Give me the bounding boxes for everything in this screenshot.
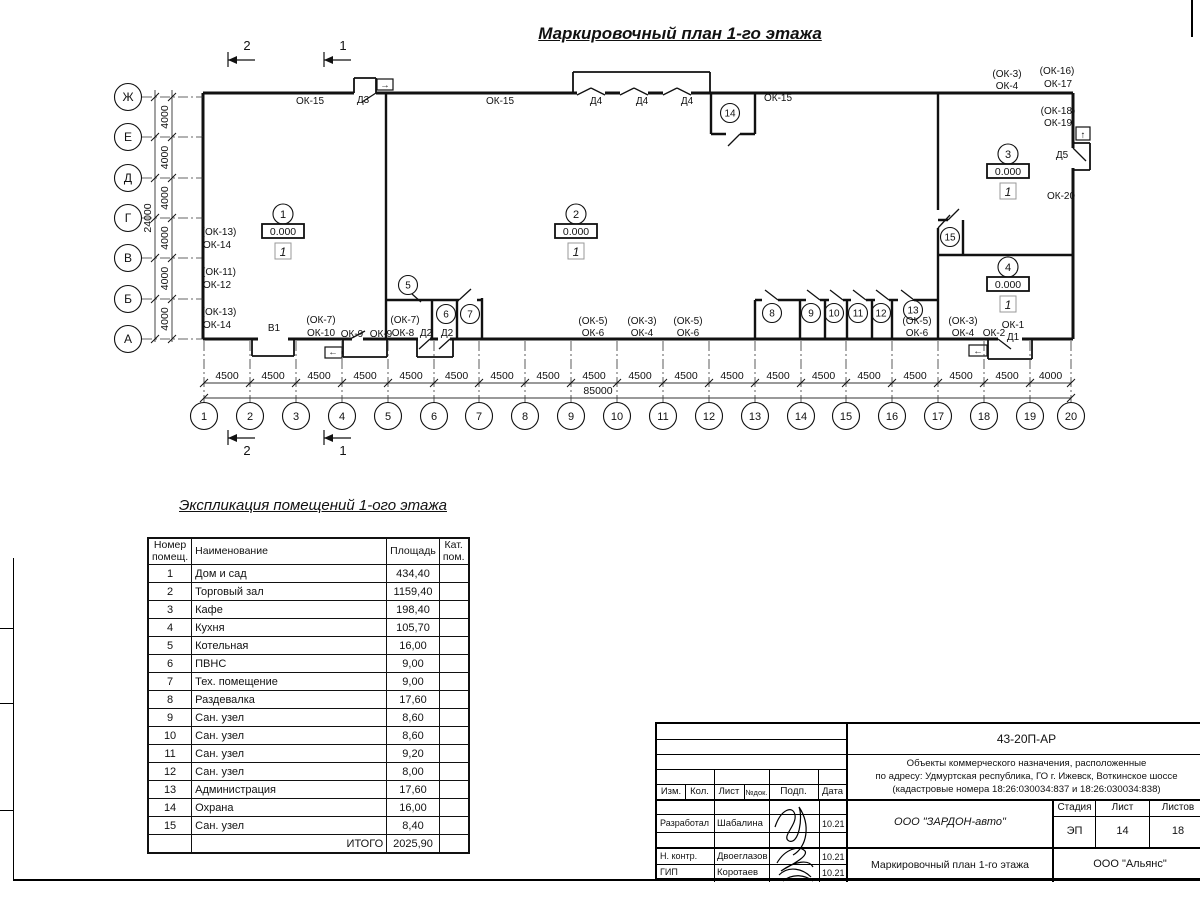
window-tick xyxy=(202,227,205,233)
plan-label: (ОК-5) xyxy=(578,316,607,327)
room-area-cell: 1159,40 xyxy=(387,583,440,601)
plan-label: ОК-14 xyxy=(203,240,231,251)
window-tick xyxy=(719,92,725,95)
window-tick xyxy=(1072,327,1075,333)
dim-value: 4500 xyxy=(215,370,239,382)
room-area-cell: 434,40 xyxy=(387,565,440,583)
col-podp: Подп. xyxy=(769,786,818,799)
entry-arrow-icon: → xyxy=(380,80,390,91)
section-arrow xyxy=(324,56,333,64)
axis-number: 20 xyxy=(1065,411,1077,423)
axis-number: 15 xyxy=(840,411,852,423)
plan-label: ОК-8 xyxy=(392,328,415,339)
plan-label: ОК-15 xyxy=(764,93,792,104)
drawing-sheet: { "title": "Маркировочный план 1-го этаж… xyxy=(0,0,1200,900)
floor-plan-svg: ЖЕДГВБА400040004000400040004000240001234… xyxy=(0,0,1200,480)
window-tick xyxy=(902,338,908,341)
plan-label: Д1 xyxy=(1007,332,1020,343)
dim-value: 4500 xyxy=(995,370,1019,382)
window-tick xyxy=(872,338,878,341)
dim-value: 4500 xyxy=(812,370,836,382)
dim-value: 4000 xyxy=(159,146,171,170)
window-tick xyxy=(202,197,205,203)
room-number: 5 xyxy=(405,281,411,292)
name-developer: Шабалина xyxy=(717,818,769,830)
axis-number: 11 xyxy=(657,411,668,423)
window-tick xyxy=(239,92,245,95)
plan-label: Д4 xyxy=(681,96,694,107)
room-number: 1 xyxy=(280,209,286,221)
schedule-row: 2Торговый зал1159,40 xyxy=(148,583,469,601)
section-arrow xyxy=(228,56,237,64)
window-tick xyxy=(209,92,215,95)
room-number-cell: 1 xyxy=(148,565,192,583)
sheets-label: Листов xyxy=(1150,802,1200,815)
sheet-label: Лист xyxy=(1096,802,1149,815)
dim-value: 4500 xyxy=(399,370,423,382)
plan-label: ОК-17 xyxy=(1044,79,1072,90)
type-mark: 1 xyxy=(1005,298,1012,312)
dim-value: 4500 xyxy=(582,370,606,382)
signature-developer xyxy=(775,807,806,855)
room-schedule-title: Экспликация помещений 1-ого этажа xyxy=(168,497,458,514)
date-ncontrol: 10.21 xyxy=(822,852,848,863)
window-tick xyxy=(752,338,758,341)
elevation-value: 0.000 xyxy=(270,226,296,238)
room-name-cell: Кухня xyxy=(192,619,387,637)
window-tick xyxy=(782,338,788,341)
dim-value: 4000 xyxy=(159,307,171,331)
entry-arrow-icon: ← xyxy=(973,346,983,357)
type-mark: 1 xyxy=(573,245,580,259)
schedule-row: 3Кафе198,40 xyxy=(148,601,469,619)
schedule-row: 10Сан. узел8,60 xyxy=(148,727,469,745)
room-number-cell: 8 xyxy=(148,691,192,709)
room-number: 3 xyxy=(1005,149,1011,161)
room-category-cell xyxy=(439,673,468,691)
axis-number: 12 xyxy=(703,411,715,423)
plan-label: ОК-14 xyxy=(203,320,231,331)
window-tick xyxy=(779,92,785,95)
axis-number: 18 xyxy=(978,411,990,423)
doc-number: 43-20П-АР xyxy=(847,732,1200,747)
room-category-cell xyxy=(439,817,468,835)
role-ncontrol: Н. контр. xyxy=(660,851,714,862)
window-tick xyxy=(1072,182,1075,188)
room-number-cell: 2 xyxy=(148,583,192,601)
plan-label: Д2 xyxy=(441,328,454,339)
frame-bottom-border xyxy=(13,879,1200,881)
room-number: 9 xyxy=(808,309,814,320)
room-name-cell: Котельная xyxy=(192,637,387,655)
room-area-cell: 16,00 xyxy=(387,799,440,817)
window-tick xyxy=(572,338,578,341)
axis-number: 17 xyxy=(932,411,944,423)
room-number-cell: 4 xyxy=(148,619,192,637)
axis-number: 2 xyxy=(247,411,253,423)
sheet-value: 14 xyxy=(1096,825,1149,839)
room-name-cell: Дом и сад xyxy=(192,565,387,583)
axis-number: 9 xyxy=(568,411,574,423)
window-tick xyxy=(899,92,905,95)
plan-label: (ОК-13) xyxy=(202,227,237,238)
plan-label: (ОК-18) xyxy=(1041,106,1076,117)
axis-number: 14 xyxy=(795,411,807,423)
window-tick xyxy=(299,92,305,95)
room-schedule-table: Номер помещ. Наименование Площадь Кат. п… xyxy=(147,537,470,854)
axis-number: 6 xyxy=(431,411,437,423)
window-tick xyxy=(1072,107,1075,113)
col-area: Площадь xyxy=(387,538,440,565)
plan-label: Д3 xyxy=(357,95,370,106)
signatures xyxy=(769,799,819,882)
plan-label: ОК-9 xyxy=(370,329,393,340)
window-tick xyxy=(539,92,545,95)
window-tick xyxy=(202,317,205,323)
room-name-cell: ПВНС xyxy=(192,655,387,673)
room-number: 15 xyxy=(944,233,956,244)
plan-label: ОК-6 xyxy=(906,328,929,339)
object-line-2: по адресу: Удмуртская республика, ГО г. … xyxy=(849,771,1200,783)
room-category-cell xyxy=(439,637,468,655)
room-area-cell: 8,60 xyxy=(387,727,440,745)
schedule-row: 7Тех. помещение9,00 xyxy=(148,673,469,691)
window-tick xyxy=(1072,272,1075,278)
name-ncontrol: Двоеглазов xyxy=(717,851,769,863)
type-mark: 1 xyxy=(1005,185,1012,199)
schedule-row: 12Сан. узел8,00 xyxy=(148,763,469,781)
room-number: 10 xyxy=(828,309,840,320)
plan-label: Д5 xyxy=(1056,150,1069,161)
plan-label: ОК-4 xyxy=(631,328,654,339)
date-gip: 10.21 xyxy=(822,868,848,879)
room-number: 2 xyxy=(573,209,579,221)
plan-label: ОК-10 xyxy=(307,328,335,339)
plan-label: (ОК-3) xyxy=(948,316,977,327)
window-tick xyxy=(1072,242,1075,248)
room-number-cell: 12 xyxy=(148,763,192,781)
dim-value: 4000 xyxy=(159,267,171,291)
window-tick xyxy=(932,338,938,341)
plan-label: Д2 xyxy=(420,328,433,339)
schedule-row: 13Администрация17,60 xyxy=(148,781,469,799)
plan-label: ОК-9 xyxy=(341,329,364,340)
dim-total: 85000 xyxy=(583,385,612,397)
window-tick xyxy=(959,92,965,95)
elevation-value: 0.000 xyxy=(995,279,1021,291)
room-category-cell xyxy=(439,763,468,781)
axis-number: 7 xyxy=(476,411,482,423)
role-developer: Разработал xyxy=(660,818,714,829)
room-area-cell: 105,70 xyxy=(387,619,440,637)
section-arrow xyxy=(324,434,333,442)
window-tick xyxy=(632,338,638,341)
plan-label: В1 xyxy=(268,323,281,334)
room-name-cell: Торговый зал xyxy=(192,583,387,601)
sheets-value: 18 xyxy=(1150,825,1200,839)
plan-label: ОК-6 xyxy=(582,328,605,339)
window-tick xyxy=(419,92,425,95)
window-tick xyxy=(202,107,205,113)
room-number-cell: 13 xyxy=(148,781,192,799)
window-tick xyxy=(662,338,668,341)
room-number: 6 xyxy=(443,310,449,321)
room-name-cell: Сан. узел xyxy=(192,709,387,727)
dim-value: 4500 xyxy=(307,370,331,382)
schedule-row: 4Кухня105,70 xyxy=(148,619,469,637)
schedule-total-row: ИТОГО2025,90 xyxy=(148,835,469,854)
plan-label: ОК-6 xyxy=(677,328,700,339)
empty-cell xyxy=(439,835,468,854)
axis-number: 19 xyxy=(1024,411,1036,423)
col-kol: Кол. xyxy=(685,786,714,798)
window-tick xyxy=(722,338,728,341)
col-ndok: №док. xyxy=(744,788,769,797)
window-tick xyxy=(1019,92,1025,95)
axis-number: 3 xyxy=(293,411,299,423)
room-name-cell: Охрана xyxy=(192,799,387,817)
window-tick xyxy=(1052,338,1058,341)
window-tick xyxy=(602,338,608,341)
room-name-cell: Сан. узел xyxy=(192,727,387,745)
window-tick xyxy=(1072,212,1075,218)
window-tick xyxy=(329,92,335,95)
window-tick xyxy=(242,338,248,341)
dim-value: 4500 xyxy=(536,370,560,382)
outer-walls xyxy=(203,93,1073,339)
window-tick xyxy=(202,257,205,263)
total-value-cell: 2025,90 xyxy=(387,835,440,854)
dim-total: 24000 xyxy=(142,203,154,232)
axis-letter: Д xyxy=(124,171,132,185)
room-number: 12 xyxy=(875,309,887,320)
frame-left-tick-2 xyxy=(0,703,13,704)
plan-label: (ОК-11) xyxy=(202,267,236,278)
room-category-cell xyxy=(439,781,468,799)
dim-value: 4500 xyxy=(857,370,881,382)
plan-label: ОК-15 xyxy=(486,96,514,107)
room-number-cell: 10 xyxy=(148,727,192,745)
section-number: 1 xyxy=(339,443,346,458)
col-data: Дата xyxy=(818,786,847,798)
window-tick xyxy=(509,92,515,95)
dim-value: 4500 xyxy=(353,370,377,382)
axis-letter: В xyxy=(124,251,132,265)
schedule-row: 6ПВНС9,00 xyxy=(148,655,469,673)
window-tick xyxy=(809,92,815,95)
axis-number: 4 xyxy=(339,411,345,423)
room-area-cell: 17,60 xyxy=(387,781,440,799)
door-leaves xyxy=(352,88,1086,349)
dim-value: 4500 xyxy=(720,370,744,382)
axis-letter: Е xyxy=(124,130,132,144)
plan-label: (ОК-7) xyxy=(390,315,419,326)
col-name: Наименование xyxy=(192,538,387,565)
dim-value: 4000 xyxy=(1039,370,1063,382)
room-name-cell: Администрация xyxy=(192,781,387,799)
total-label-cell: ИТОГО xyxy=(192,835,387,854)
org-designer: ООО "ЗАРДОН-авто" xyxy=(847,816,1053,830)
room-number-cell: 7 xyxy=(148,673,192,691)
col-izm: Изм. xyxy=(657,786,685,798)
room-area-cell: 9,00 xyxy=(387,655,440,673)
frame-left-tick-1 xyxy=(0,628,13,629)
room-number: 7 xyxy=(467,310,473,321)
room-category-cell xyxy=(439,745,468,763)
room-number: 8 xyxy=(769,309,775,320)
plan-label: ОК-19 xyxy=(1044,118,1072,129)
room-category-cell xyxy=(439,583,468,601)
room-category-cell xyxy=(439,565,468,583)
window-tick xyxy=(212,338,218,341)
axis-letter: Б xyxy=(124,292,132,306)
plan-label: ОК-4 xyxy=(952,328,975,339)
window-tick xyxy=(479,92,485,95)
name-gip: Коротаев xyxy=(717,867,769,879)
dim-value: 4500 xyxy=(628,370,652,382)
plan-label: (ОК-13) xyxy=(202,307,237,318)
window-tick xyxy=(202,137,205,143)
stage-value: ЭП xyxy=(1054,825,1095,839)
window-tick xyxy=(812,338,818,341)
title-block: Изм. Кол. Лист №док. Подп. Дата Разработ… xyxy=(655,722,1200,880)
window-tick xyxy=(269,92,275,95)
axis-number: 10 xyxy=(611,411,623,423)
room-category-cell xyxy=(439,727,468,745)
stage-label: Стадия xyxy=(1054,802,1095,815)
dim-value: 4500 xyxy=(490,370,514,382)
empty-cell xyxy=(148,835,192,854)
room-name-cell: Сан. узел xyxy=(192,817,387,835)
interior-walls xyxy=(386,93,1073,339)
room-area-cell: 8,40 xyxy=(387,817,440,835)
object-line-3: (кадастровые номера 18:26:030034:837 и 1… xyxy=(849,784,1200,796)
window-tick xyxy=(302,338,308,341)
section-number: 1 xyxy=(339,38,346,53)
drawing-name: Маркировочный план 1-го этажа xyxy=(847,859,1053,872)
window-tick xyxy=(929,92,935,95)
axis-letter: А xyxy=(124,332,132,346)
dim-value: 4500 xyxy=(903,370,927,382)
dim-value: 4000 xyxy=(159,186,171,210)
room-area-cell: 17,60 xyxy=(387,691,440,709)
schedule-row: 1Дом и сад434,40 xyxy=(148,565,469,583)
dimension-lines xyxy=(155,90,1071,398)
room-number-cell: 6 xyxy=(148,655,192,673)
plan-label: (ОК-7) xyxy=(306,315,335,326)
axis-number: 1 xyxy=(201,411,207,423)
plan-label: (ОК-16) xyxy=(1040,66,1075,77)
window-tick xyxy=(392,338,398,341)
room-category-cell xyxy=(439,691,468,709)
window-tick xyxy=(839,92,845,95)
axis-number: 16 xyxy=(886,411,898,423)
room-schedule: Номер помещ. Наименование Площадь Кат. п… xyxy=(147,537,470,854)
plan-label: ОК-4 xyxy=(996,81,1019,92)
axis-number: 8 xyxy=(522,411,528,423)
window-tick xyxy=(449,92,455,95)
section-arrow xyxy=(228,434,237,442)
dim-value: 4000 xyxy=(159,226,171,250)
axis-number: 5 xyxy=(385,411,391,423)
window-tick xyxy=(869,92,875,95)
plan-label: (ОК-5) xyxy=(673,316,702,327)
room-area-cell: 8,00 xyxy=(387,763,440,781)
room-area-cell: 198,40 xyxy=(387,601,440,619)
room-number-cell: 11 xyxy=(148,745,192,763)
dim-value: 4500 xyxy=(766,370,790,382)
room-number-cell: 3 xyxy=(148,601,192,619)
plan-label: (ОК-3) xyxy=(992,69,1021,80)
room-number: 4 xyxy=(1005,262,1011,274)
room-category-cell xyxy=(439,709,468,727)
plan-label: ОК-12 xyxy=(203,280,231,291)
frame-right-border-top xyxy=(1191,0,1193,37)
elevation-value: 0.000 xyxy=(995,166,1021,178)
axis-number: 13 xyxy=(749,411,761,423)
room-number-cell: 5 xyxy=(148,637,192,655)
room-name-cell: Сан. узел xyxy=(192,745,387,763)
schedule-row: 8Раздевалка17,60 xyxy=(148,691,469,709)
window-tick xyxy=(482,338,488,341)
dim-value: 4500 xyxy=(445,370,469,382)
col-list: Лист xyxy=(714,786,744,798)
type-mark: 1 xyxy=(280,245,287,259)
schedule-header-row: Номер помещ. Наименование Площадь Кат. п… xyxy=(148,538,469,565)
dim-value: 4000 xyxy=(159,105,171,129)
room-category-cell xyxy=(439,601,468,619)
room-number: 13 xyxy=(907,306,919,317)
schedule-row: 15Сан. узел8,40 xyxy=(148,817,469,835)
col-number: Номер помещ. xyxy=(148,538,192,565)
axis-letter: Г xyxy=(125,211,132,225)
section-number: 2 xyxy=(243,38,250,53)
plan-label: Д4 xyxy=(590,96,603,107)
section-number: 2 xyxy=(243,443,250,458)
room-number-cell: 14 xyxy=(148,799,192,817)
schedule-row: 5Котельная16,00 xyxy=(148,637,469,655)
frame-left-tick-3 xyxy=(0,810,13,811)
room-area-cell: 9,20 xyxy=(387,745,440,763)
window-tick xyxy=(692,338,698,341)
window-tick xyxy=(1072,302,1075,308)
room-number: 14 xyxy=(724,109,736,120)
room-name-cell: Кафе xyxy=(192,601,387,619)
window-tick xyxy=(989,92,995,95)
plan-label: ОК-15 xyxy=(296,96,324,107)
elevation-value: 0.000 xyxy=(563,226,589,238)
schedule-row: 9Сан. узел8,60 xyxy=(148,709,469,727)
window-tick xyxy=(542,338,548,341)
col-category: Кат. пом. xyxy=(439,538,468,565)
schedule-row: 11Сан. узел9,20 xyxy=(148,745,469,763)
entry-arrow-icon: ↑ xyxy=(1081,130,1086,141)
room-category-cell xyxy=(439,619,468,637)
window-tick xyxy=(202,167,205,173)
entry-arrow-icon: ← xyxy=(328,347,338,358)
dim-value: 4500 xyxy=(949,370,973,382)
frame-left-border xyxy=(13,558,14,880)
room-name-cell: Тех. помещение xyxy=(192,673,387,691)
window-tick xyxy=(842,338,848,341)
room-area-cell: 9,00 xyxy=(387,673,440,691)
dim-value: 4500 xyxy=(261,370,285,382)
window-tick xyxy=(202,287,205,293)
window-tick xyxy=(512,338,518,341)
object-line-1: Объекты коммерческого назначения, распол… xyxy=(849,758,1200,770)
room-number-cell: 15 xyxy=(148,817,192,835)
room-area-cell: 16,00 xyxy=(387,637,440,655)
